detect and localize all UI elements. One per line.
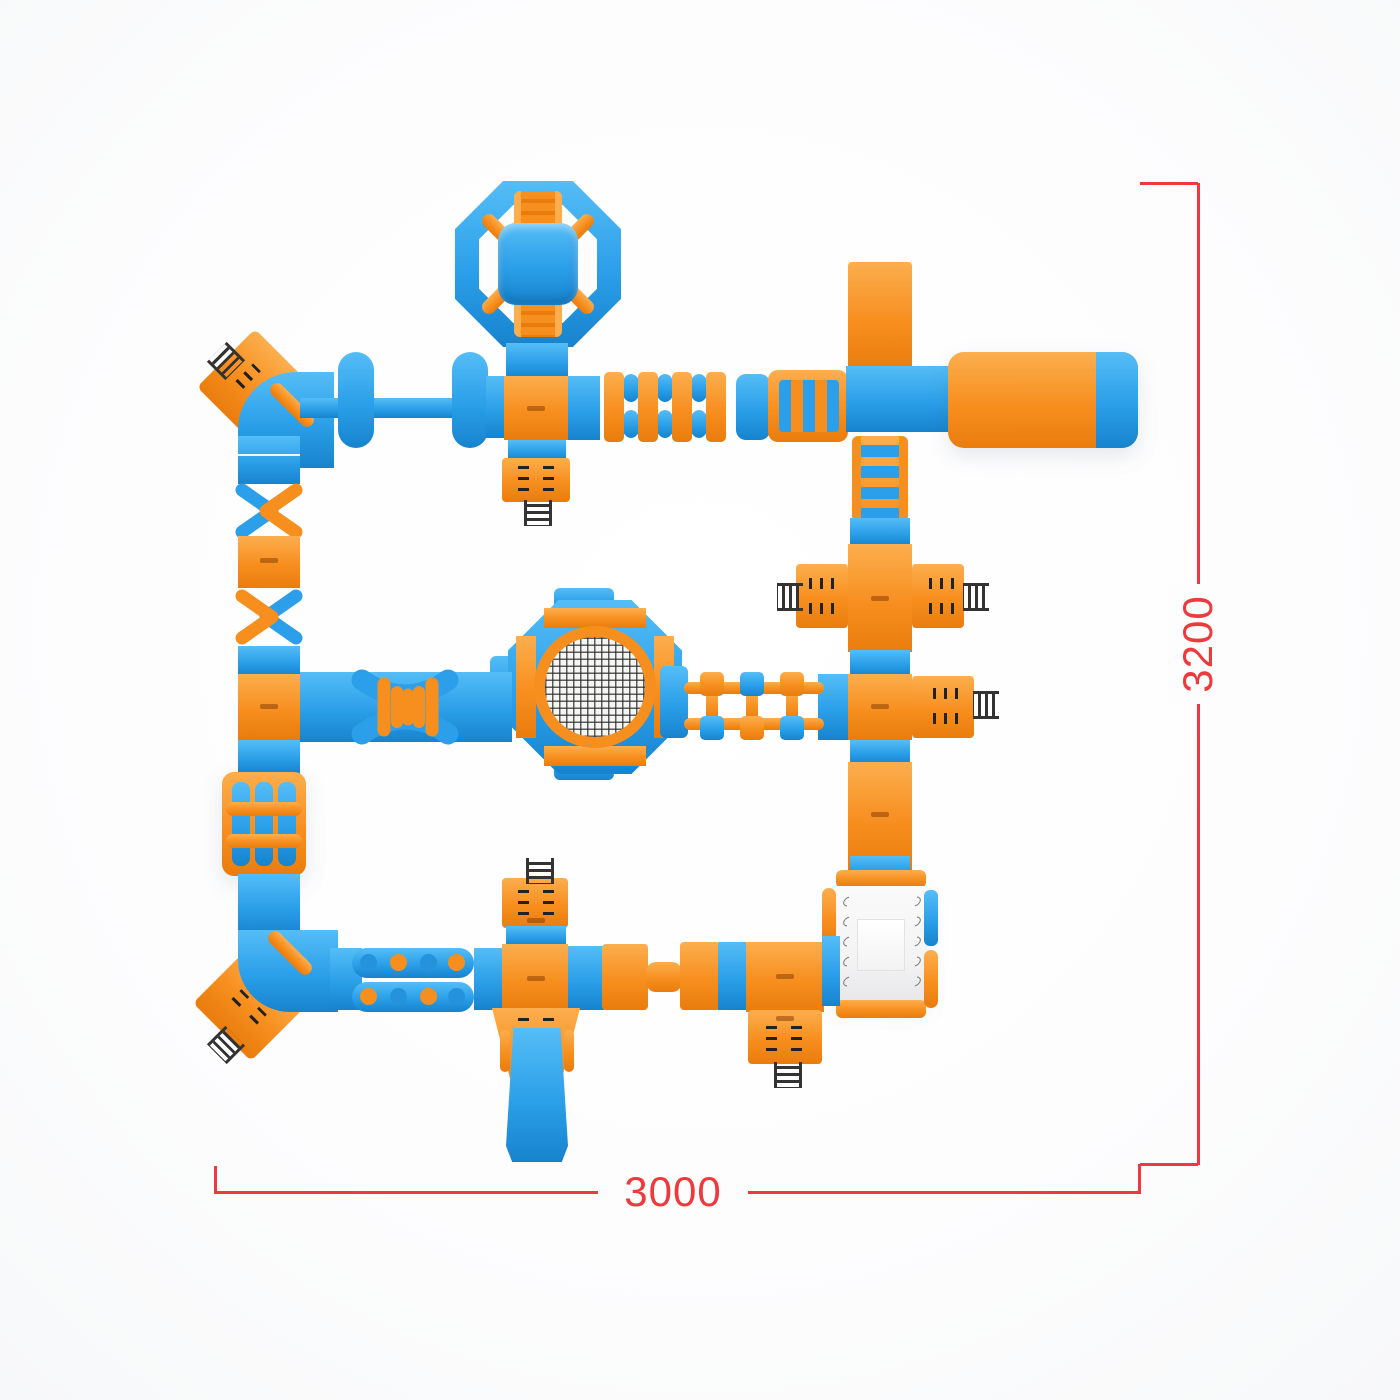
- wedge-plateau: [858, 920, 904, 970]
- path-segment: [850, 650, 910, 676]
- roller-hurdles: [598, 372, 736, 442]
- crossover-obstacle-upper: [232, 480, 306, 542]
- pod-dot: [448, 954, 465, 971]
- slide-side-nub: [500, 1030, 510, 1072]
- dimension-label-height: 3200: [1168, 584, 1228, 704]
- entry-dash-marks: [518, 890, 554, 918]
- path-connector: [568, 376, 600, 440]
- path-segment: [238, 874, 300, 936]
- entry-dash-marks: [518, 466, 554, 494]
- crossover-obstacle-lower: [232, 586, 306, 648]
- entry-dash-marks: [766, 1026, 802, 1054]
- roller-cage-bar: [226, 834, 302, 848]
- junction-arm-east: [568, 946, 604, 1010]
- wedge-side-pill-right: [924, 950, 938, 1008]
- brand-mark: [871, 812, 889, 817]
- slide-tower: [848, 262, 912, 370]
- path-segment: [238, 436, 300, 484]
- ladder-icon-bottom-cross: [526, 858, 554, 884]
- hurdle-bar: [604, 372, 624, 442]
- crossbar-capsule-2: [452, 352, 488, 448]
- path-segment: [822, 936, 840, 1006]
- roller-cage-roller: [255, 782, 273, 866]
- trampoline-ring-north: [544, 608, 646, 628]
- bridge-end-block: [660, 666, 688, 738]
- seam-line: [238, 454, 300, 456]
- landing-pool-end-cap: [1096, 352, 1138, 448]
- brand-mark: [527, 976, 545, 981]
- pod-dot: [390, 954, 407, 971]
- junction-arm-north: [506, 926, 566, 946]
- dimension-tick-bottom-right: [1140, 1163, 1198, 1166]
- trampoline-ring-west: [516, 636, 536, 738]
- brand-mark: [260, 558, 278, 563]
- wedge-connector-right: [924, 890, 938, 946]
- waterpark-layout-canvas: 3200 3000: [0, 0, 1400, 1400]
- slide-ramp: [506, 1028, 568, 1162]
- hurdle-bar: [672, 372, 692, 442]
- bridge-step-block: [700, 672, 724, 696]
- ladder-icon-left: [777, 583, 803, 611]
- brand-mark: [776, 1016, 794, 1021]
- roller-cage-roller: [232, 782, 250, 866]
- brand-mark: [871, 704, 889, 709]
- pod-dot: [360, 988, 377, 1005]
- dimension-tick-top: [1140, 182, 1198, 185]
- pod-dot: [360, 954, 377, 971]
- hurdle-bar: [706, 372, 726, 442]
- trampoline-mesh: [534, 626, 656, 748]
- bridge-step-block: [780, 672, 804, 696]
- climb-steps: [852, 436, 908, 522]
- path-segment: [238, 646, 300, 676]
- path-segment: [718, 942, 748, 1010]
- ladder-icon-top-cross: [524, 500, 552, 526]
- brand-mark: [527, 918, 545, 923]
- pod-dot: [420, 988, 437, 1005]
- entry-dash-marks: [930, 688, 958, 724]
- platform-block: [680, 942, 720, 1010]
- brand-mark: [527, 406, 545, 411]
- path-connector: [736, 374, 770, 440]
- octagon-column: [506, 343, 568, 379]
- trampoline-ring-south: [544, 746, 646, 766]
- slide-side-nub: [564, 1030, 574, 1072]
- pod-dot: [390, 988, 407, 1005]
- dimension-tick-left: [214, 1166, 217, 1194]
- brand-mark: [260, 704, 278, 709]
- roller-cage-bar: [226, 802, 302, 816]
- wedge-bottom-bar: [836, 1000, 926, 1018]
- roller-cage-roller: [278, 782, 296, 866]
- bridge-step-block: [700, 716, 724, 740]
- dimension-label-width: 3000: [598, 1168, 748, 1216]
- squeeze-rollers: [350, 662, 460, 752]
- pod-dot: [448, 988, 465, 1005]
- octagon-center-pad: [498, 223, 578, 305]
- ladder-icon-east: [973, 691, 999, 719]
- platform-block: [602, 944, 648, 1010]
- brand-mark: [871, 596, 889, 601]
- path-segment: [850, 518, 910, 546]
- entry-dash-marks: [926, 578, 954, 614]
- crossbar-capsule-1: [338, 352, 374, 448]
- pod-dot: [420, 954, 437, 971]
- bridge-step-block: [740, 672, 764, 696]
- tube-connector: [646, 962, 682, 992]
- grip-marks-right: [912, 896, 920, 987]
- path-segment: [850, 740, 910, 764]
- rung-bridge-slots: [779, 380, 839, 432]
- entry-dash-marks: [806, 578, 834, 614]
- bridge-step-block: [780, 716, 804, 740]
- ladder-icon-right: [963, 583, 989, 611]
- brand-mark: [776, 974, 794, 979]
- dimension-tick-right: [1138, 1164, 1141, 1194]
- bridge-step-block: [740, 716, 764, 740]
- junction-arm-south: [508, 440, 566, 460]
- hurdle-bar: [638, 372, 658, 442]
- grip-marks-left: [844, 896, 852, 987]
- ladder-icon-se: [774, 1062, 802, 1088]
- path-segment: [238, 740, 300, 774]
